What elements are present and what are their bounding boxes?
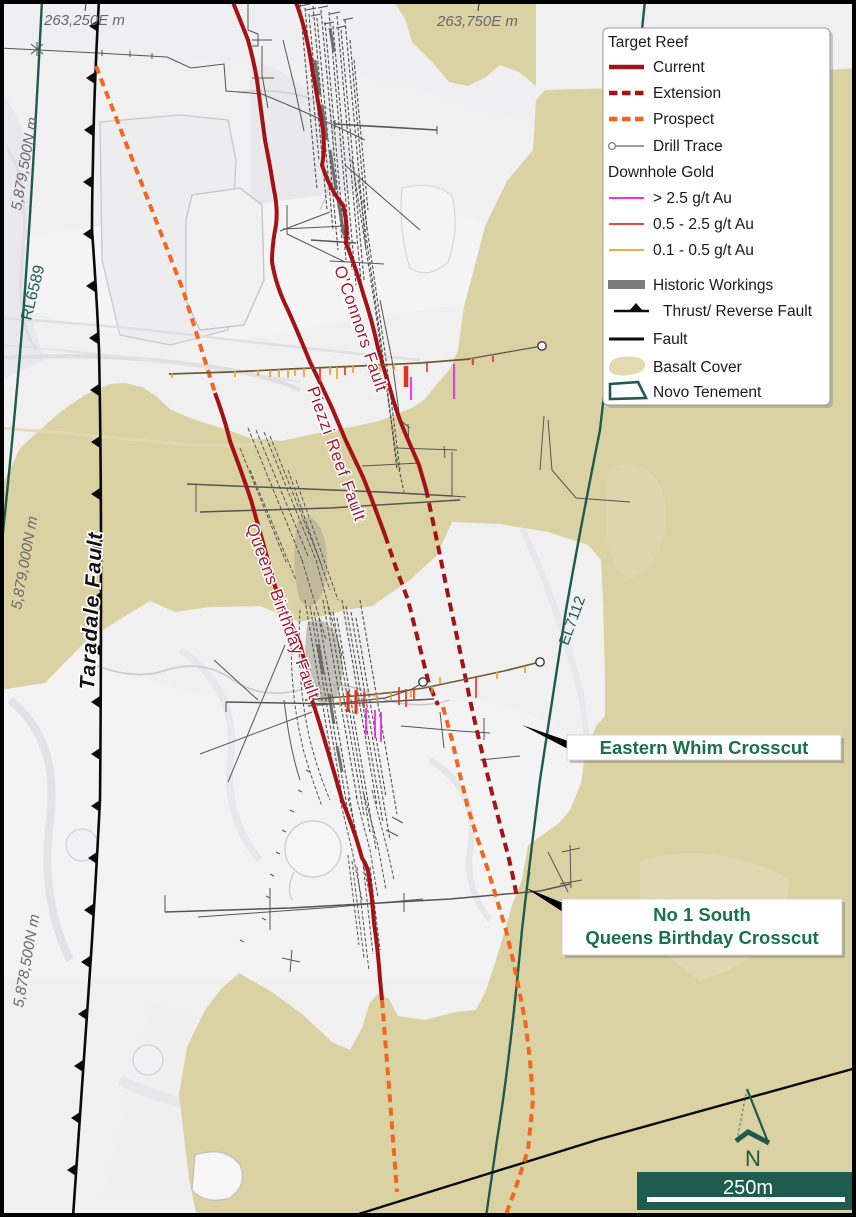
svg-text:Eastern Whim Crosscut: Eastern Whim Crosscut [600,737,809,758]
svg-text:Target Reef: Target Reef [608,34,689,51]
svg-text:Drill Trace: Drill Trace [653,138,723,155]
svg-text:Current: Current [653,59,705,76]
svg-text:Downhole Gold: Downhole Gold [608,164,714,181]
svg-text:250m: 250m [723,1177,773,1199]
svg-text:263,250E m: 263,250E m [43,12,125,29]
svg-text:263,750E m: 263,750E m [436,13,518,30]
svg-text:0.1 - 0.5 g/t Au: 0.1 - 0.5 g/t Au [653,242,754,259]
svg-text:Thrust/ Reverse Fault: Thrust/ Reverse Fault [663,303,813,320]
svg-text:Extension: Extension [653,85,721,102]
svg-text:Novo Tenement: Novo Tenement [653,384,762,401]
svg-text:Historic Workings: Historic Workings [653,277,774,294]
svg-text:Queens Birthday Crosscut: Queens Birthday Crosscut [585,927,818,948]
svg-text:> 2.5 g/t Au: > 2.5 g/t Au [653,190,732,207]
svg-text:No 1 South: No 1 South [653,904,751,925]
svg-text:N: N [745,1146,761,1171]
svg-text:Fault: Fault [653,331,688,348]
svg-text:Basalt Cover: Basalt Cover [653,359,742,376]
svg-text:Prospect: Prospect [653,111,715,128]
svg-text:0.5 - 2.5 g/t Au: 0.5 - 2.5 g/t Au [653,216,754,233]
